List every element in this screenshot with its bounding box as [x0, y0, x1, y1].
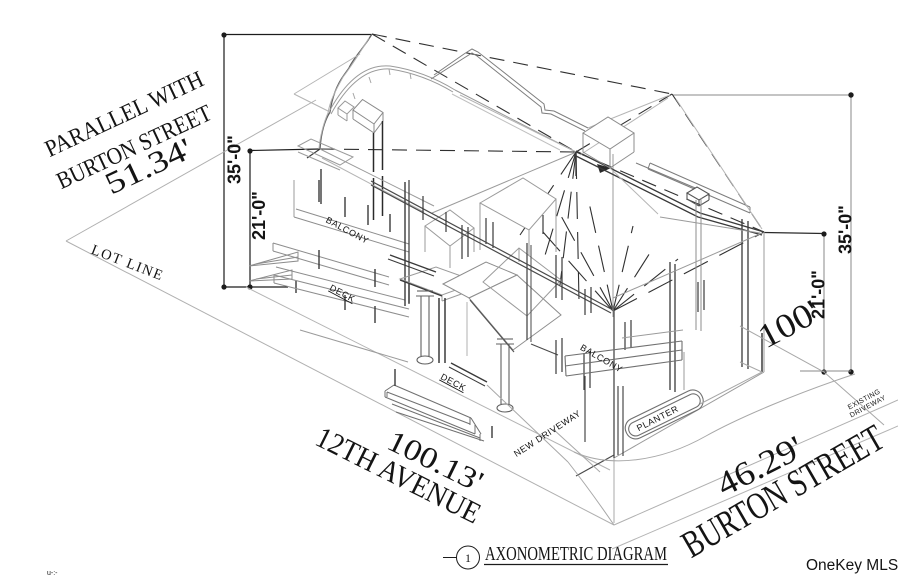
svg-text:LOT LINE: LOT LINE — [89, 242, 166, 284]
svg-text:35'-0": 35'-0" — [225, 135, 245, 184]
svg-text:21'-0": 21'-0" — [249, 191, 269, 240]
svg-text:1: 1 — [465, 551, 471, 565]
svg-text:DECK: DECK — [328, 283, 357, 305]
svg-text:35'-0": 35'-0" — [836, 205, 856, 254]
svg-text:AXONOMETRIC DIAGRAM: AXONOMETRIC DIAGRAM — [485, 543, 667, 565]
svg-text:OneKey MLS: OneKey MLS — [806, 557, 898, 574]
svg-text:u-:-: u-:- — [47, 570, 58, 576]
